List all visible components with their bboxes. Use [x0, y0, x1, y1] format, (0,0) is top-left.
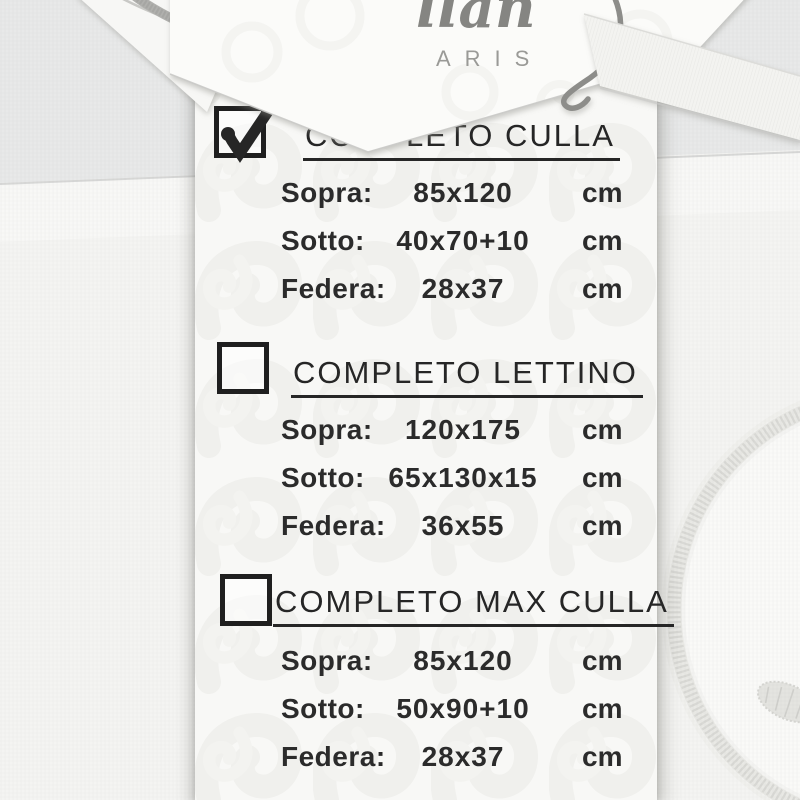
- size-value: 85x120: [353, 177, 573, 209]
- size-unit: cm: [582, 177, 622, 209]
- size-row: Sopra: 120x175 cm: [195, 414, 657, 448]
- size-row: Federa: 36x55 cm: [195, 510, 657, 544]
- section-title: COMPLETO LETTINO: [291, 355, 643, 398]
- size-value: 36x55: [353, 510, 573, 542]
- size-option-section-lettino: COMPLETO LETTINO Sopra: 120x175 cm Sotto…: [195, 341, 657, 571]
- section-title: COMPLETO CULLA: [303, 118, 620, 161]
- size-unit: cm: [582, 693, 622, 725]
- product-label-photo: COMPLETO CULLA Sopra: 85x120 cm Sotto: 4…: [0, 0, 800, 800]
- size-row: Sopra: 85x120 cm: [195, 177, 657, 211]
- size-unit: cm: [582, 645, 622, 677]
- size-row: Sotto: 65x130x15 cm: [195, 462, 657, 496]
- size-unit: cm: [582, 225, 622, 257]
- size-value: 40x70+10: [353, 225, 573, 257]
- size-row: Sotto: 40x70+10 cm: [195, 225, 657, 259]
- size-unit: cm: [582, 741, 622, 773]
- size-value: 28x37: [353, 273, 573, 305]
- section-title: COMPLETO MAX CULLA: [273, 584, 674, 627]
- size-unit: cm: [582, 273, 622, 305]
- size-row: Federa: 28x37 cm: [195, 273, 657, 307]
- size-tag-card: COMPLETO CULLA Sopra: 85x120 cm Sotto: 4…: [195, 0, 657, 800]
- size-row: Sopra: 85x120 cm: [195, 645, 657, 679]
- size-unit: cm: [582, 510, 622, 542]
- size-value: 120x175: [353, 414, 573, 446]
- checkbox-completo-max-culla: [220, 574, 272, 626]
- checkmark-icon: [210, 96, 282, 168]
- size-unit: cm: [582, 462, 622, 494]
- size-row: Federa: 28x37 cm: [195, 741, 657, 775]
- size-row: Sotto: 50x90+10 cm: [195, 693, 657, 727]
- checkbox-completo-lettino: [217, 342, 269, 394]
- size-unit: cm: [582, 414, 622, 446]
- size-value: 28x37: [353, 741, 573, 773]
- size-value: 85x120: [353, 645, 573, 677]
- size-value: 50x90+10: [353, 693, 573, 725]
- size-option-section-max-culla: COMPLETO MAX CULLA Sopra: 85x120 cm Sott…: [195, 572, 657, 800]
- checkbox-completo-culla: [214, 106, 266, 158]
- size-value: 65x130x15: [353, 462, 573, 494]
- size-option-section-culla: COMPLETO CULLA Sopra: 85x120 cm Sotto: 4…: [195, 104, 657, 334]
